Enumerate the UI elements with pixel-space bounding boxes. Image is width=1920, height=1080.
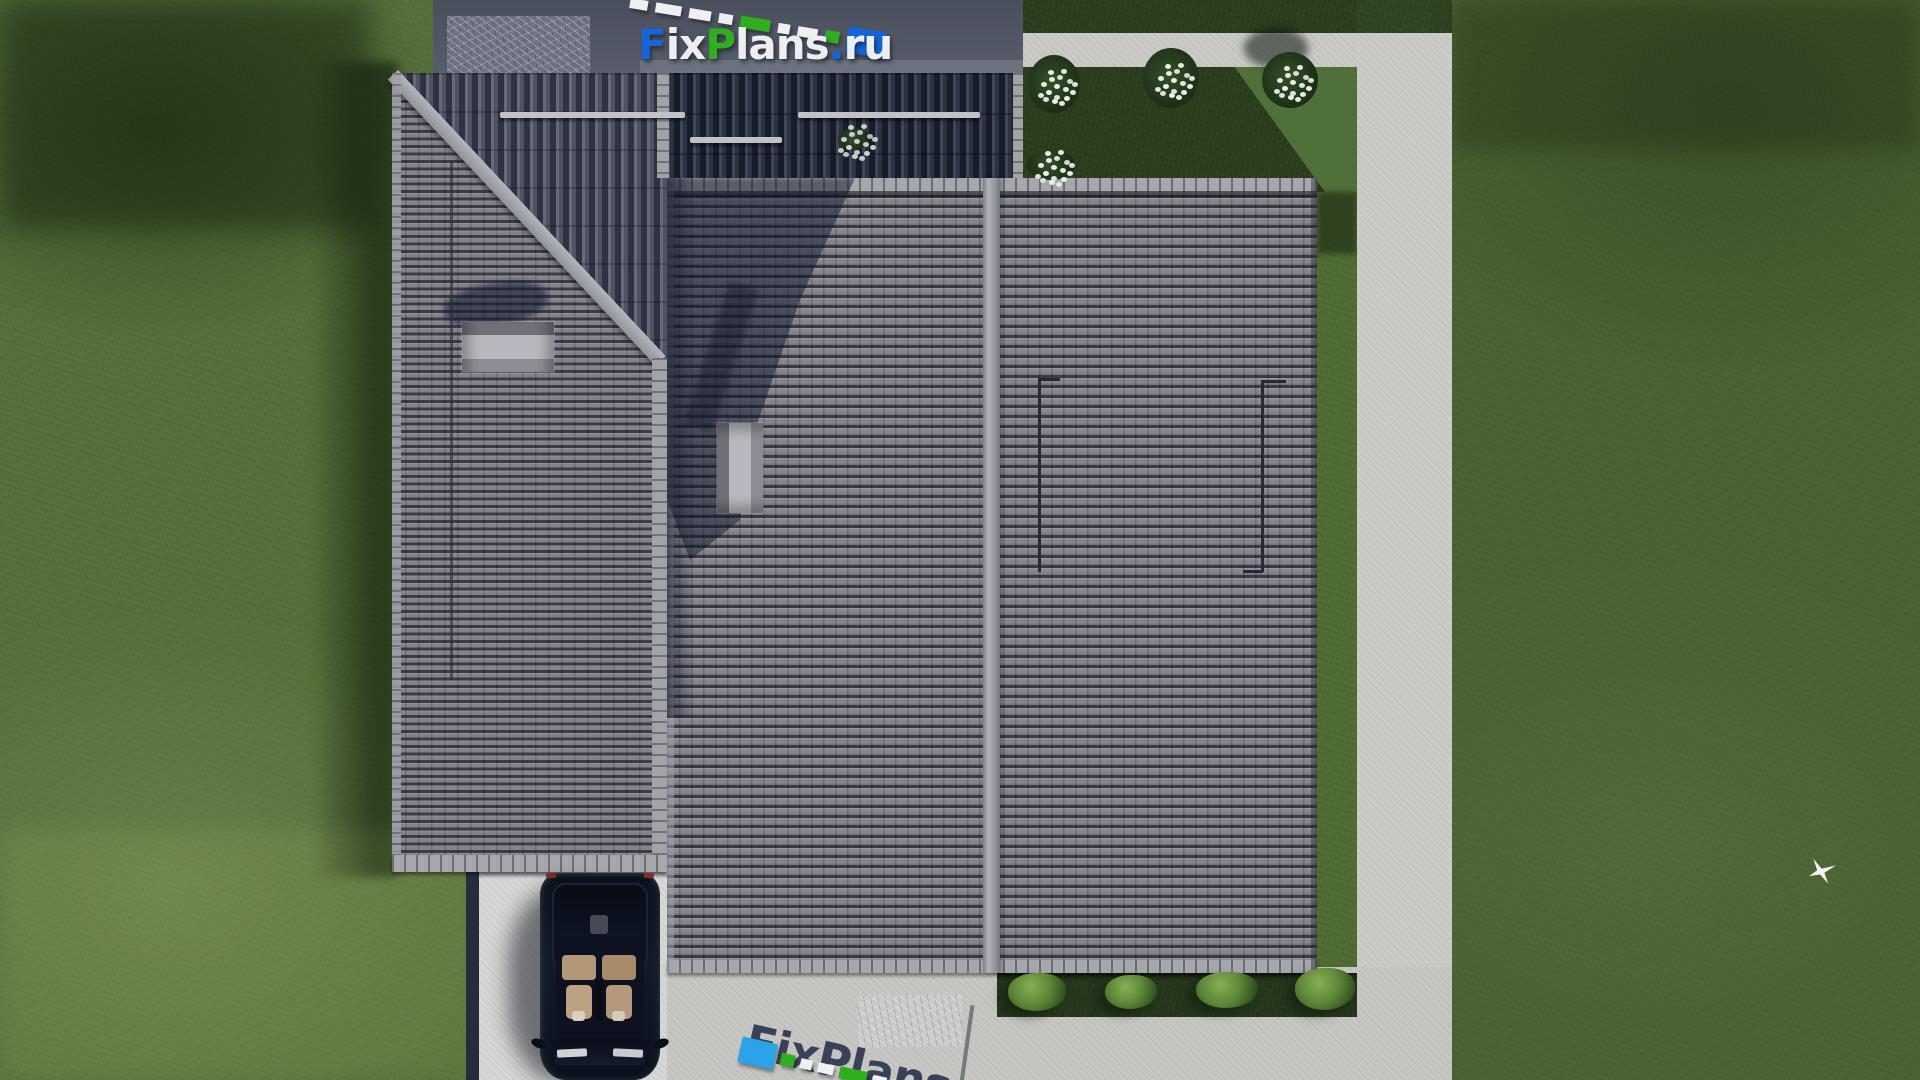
- snow-guard-3: [798, 112, 980, 118]
- car-center-console: [595, 981, 603, 1021]
- lawn-east-top-dark: [1452, 0, 1920, 150]
- scale-segment: [655, 2, 682, 16]
- flowering-bush-small-2: [838, 128, 870, 150]
- car-cowl-strip-right: [613, 1048, 643, 1058]
- roof-main-ridge-cap: [983, 178, 1000, 973]
- flowering-bush-2: [1143, 48, 1199, 108]
- garden-strip-east: [1317, 192, 1357, 973]
- scale-segment: [799, 1058, 813, 1070]
- roof-gutter-joint: [657, 73, 669, 178]
- flowering-bush-1: [1028, 55, 1080, 113]
- roof-north-low: [667, 73, 1023, 178]
- car-taillight-right: [644, 873, 654, 878]
- lightning-cable-main-2-stub-bottom: [1243, 570, 1263, 573]
- flowering-bush-small-1: [1027, 150, 1075, 180]
- scale-segment: [817, 1062, 835, 1075]
- chimney-main-cap: [717, 423, 763, 513]
- walkway-east: [1357, 33, 1452, 1080]
- brand-letters-ix: ix: [666, 20, 706, 69]
- scale-segment-green: [838, 1066, 868, 1080]
- lightning-cable-main-1-stub: [1038, 378, 1060, 381]
- roof-west-wing-left-eave: [392, 73, 401, 869]
- house-shadow-west-lawn: [312, 62, 398, 877]
- lightning-cable-main-2: [1261, 380, 1264, 572]
- scale-segment-green: [780, 1053, 796, 1068]
- scale-segment: [629, 0, 648, 11]
- shaded-lawn-above-path: [1357, 0, 1452, 33]
- roof-west-wing-bottom-eave: [392, 855, 667, 872]
- concrete-pad-south: [858, 994, 963, 1048]
- scale-segment: [871, 1075, 887, 1080]
- aerial-render-scene: FixPlans.ru FixPlans.ru: [0, 0, 1920, 1080]
- chimney-west-cap: [462, 322, 554, 372]
- snow-guard-1: [500, 112, 685, 118]
- car-headrest-left: [572, 1011, 585, 1021]
- lightning-cable-main-2-stub: [1261, 380, 1286, 383]
- brand-logo: FixPlans.ru: [638, 20, 892, 69]
- flowering-bush-3: [1262, 52, 1318, 108]
- brand-letters-lans: lans: [735, 20, 829, 69]
- car-cowl-strip-left: [557, 1048, 587, 1058]
- car-rear-seat-bench: [562, 955, 596, 980]
- brand-dot: .: [829, 20, 844, 69]
- brand-letter-f: F: [638, 20, 666, 69]
- roof-main-right-edge: [1311, 178, 1317, 973]
- lawn-east-of-path-tint: [1452, 0, 1920, 1080]
- brand-letter-p: P: [705, 20, 735, 69]
- car: [540, 873, 660, 1080]
- car-roof-hatch: [590, 915, 608, 934]
- car-taillight-left: [546, 873, 556, 878]
- roof-north-low-east-edge: [1013, 73, 1023, 178]
- car-rear-seat-bench-right: [602, 955, 636, 980]
- snow-guard-2: [690, 137, 782, 143]
- car-headrest-right: [612, 1011, 625, 1021]
- driveway-edge-shadow: [466, 869, 479, 1080]
- garden-strip-east-shadow: [1317, 192, 1357, 254]
- brand-letters-ru: ru: [844, 20, 893, 69]
- roof-west-wing-right-eave: [652, 358, 667, 869]
- lightning-cable-west: [450, 160, 453, 680]
- scale-segment-blue: [737, 1036, 778, 1069]
- flying-bird-icon: [1802, 852, 1843, 893]
- left-edge-shadow-on-main-roof: [667, 178, 695, 718]
- lightning-cable-main-1: [1038, 378, 1041, 572]
